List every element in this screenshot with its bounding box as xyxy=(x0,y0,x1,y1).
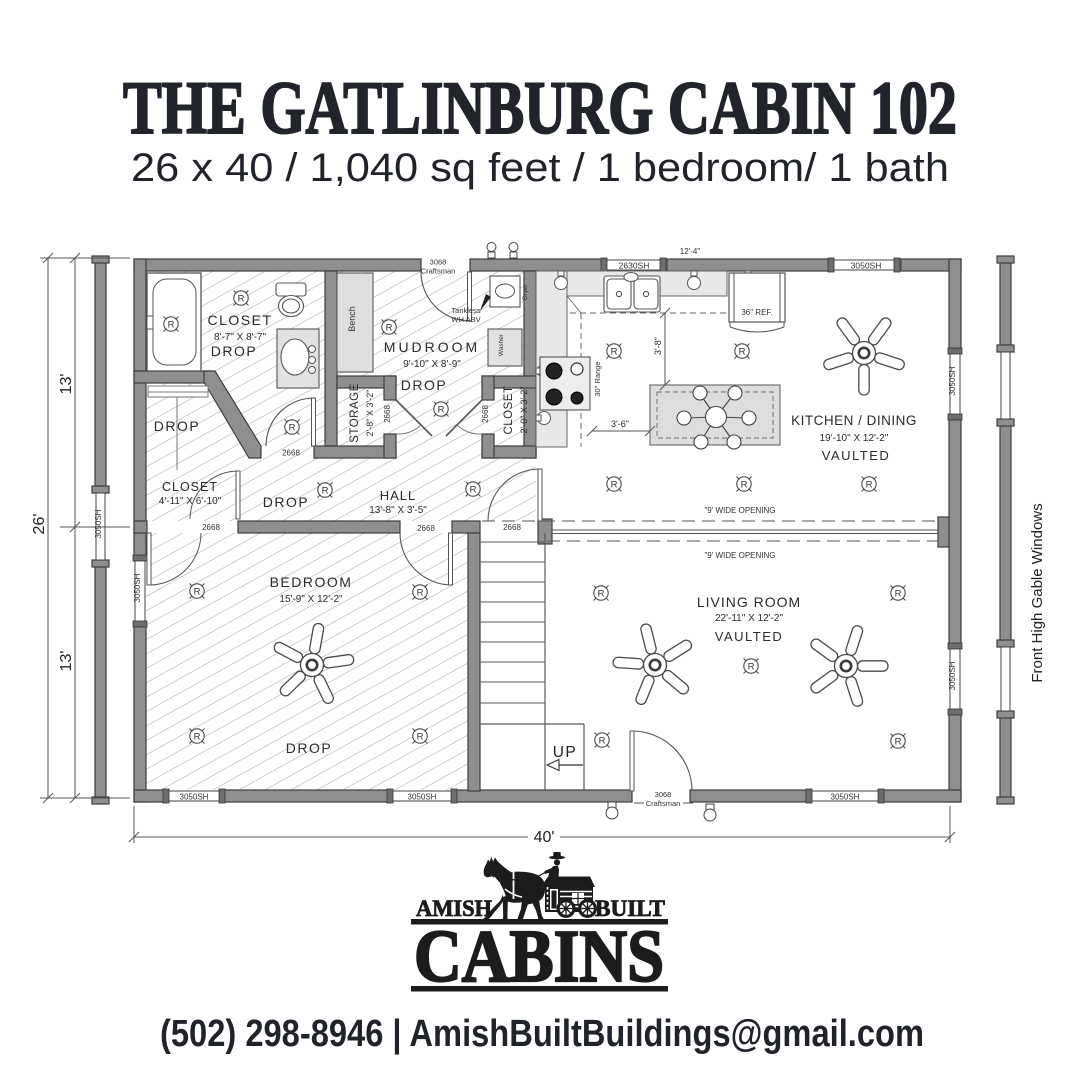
svg-text:KITCHEN / DINING: KITCHEN / DINING xyxy=(791,413,917,428)
svg-text:2668: 2668 xyxy=(282,449,300,458)
svg-text:DROP: DROP xyxy=(401,377,447,393)
svg-text:CLOSET: CLOSET xyxy=(503,385,515,434)
svg-text:15'-9" X 12'-2": 15'-9" X 12'-2" xyxy=(279,594,343,605)
svg-text:BEDROOM: BEDROOM xyxy=(270,574,353,590)
svg-text:3050SH: 3050SH xyxy=(948,661,957,690)
svg-text:HALL: HALL xyxy=(380,488,417,503)
svg-text:40': 40' xyxy=(534,829,555,846)
svg-text:"9' WIDE OPENING: "9' WIDE OPENING xyxy=(704,551,775,560)
svg-text:26 x 40 / 1,040 sq feet / 1 be: 26 x 40 / 1,040 sq feet / 1 bedroom/ 1 b… xyxy=(131,146,949,190)
svg-text:STORAGE: STORAGE xyxy=(349,383,361,443)
svg-text:8'-7" X 8'-7": 8'-7" X 8'-7" xyxy=(214,332,267,343)
svg-text:26': 26' xyxy=(31,514,48,535)
svg-text:2668: 2668 xyxy=(481,405,490,423)
svg-text:"9' WIDE OPENING: "9' WIDE OPENING xyxy=(704,506,775,515)
svg-text:Tankless: Tankless xyxy=(451,306,480,315)
svg-text:DROP: DROP xyxy=(154,418,200,434)
svg-text:Washer: Washer xyxy=(498,333,505,356)
svg-text:CABINS: CABINS xyxy=(414,916,664,998)
svg-text:DROP: DROP xyxy=(211,343,257,359)
svg-text:3'-6": 3'-6" xyxy=(611,419,629,429)
svg-text:9'-10" X 8'-9": 9'-10" X 8'-9" xyxy=(403,359,461,370)
svg-text:DROP: DROP xyxy=(286,740,332,756)
svg-text:2668: 2668 xyxy=(202,523,220,532)
svg-text:12'-4": 12'-4" xyxy=(680,247,701,256)
svg-text:13'-8" X 3'-5": 13'-8" X 3'-5" xyxy=(369,505,427,516)
svg-text:(502) 298-8946 | AmishBuiltBui: (502) 298-8946 | AmishBuiltBuildings@gma… xyxy=(160,1013,924,1055)
svg-text:3050SH: 3050SH xyxy=(133,573,142,602)
svg-text:3050SH: 3050SH xyxy=(180,793,209,802)
svg-text:2'-0" X 3'-2": 2'-0" X 3'-2" xyxy=(519,387,529,434)
svg-text:3050SH: 3050SH xyxy=(948,366,957,395)
svg-text:19'-10" X 12'-2": 19'-10" X 12'-2" xyxy=(820,433,889,444)
svg-text:Bench: Bench xyxy=(347,306,357,332)
svg-text:3068: 3068 xyxy=(655,790,672,799)
svg-text:2668: 2668 xyxy=(383,405,392,423)
svg-text:CLOSET: CLOSET xyxy=(162,480,218,494)
svg-text:UP: UP xyxy=(553,744,578,761)
svg-text:2668: 2668 xyxy=(503,523,521,532)
svg-text:DROP: DROP xyxy=(263,494,309,510)
svg-text:WH ABV: WH ABV xyxy=(451,315,480,324)
svg-text:2630SH: 2630SH xyxy=(619,261,650,271)
svg-text:Craftsman: Craftsman xyxy=(646,799,681,808)
svg-text:2'-8" X 3'-2": 2'-8" X 3'-2" xyxy=(365,390,375,437)
svg-text:3050SH: 3050SH xyxy=(831,793,860,802)
svg-text:3068: 3068 xyxy=(430,258,447,267)
svg-text:22'-11" X 12'-2": 22'-11" X 12'-2" xyxy=(715,613,783,624)
svg-text:3050SH: 3050SH xyxy=(408,793,437,802)
svg-text:3050SH: 3050SH xyxy=(94,509,103,538)
svg-text:THE GATLINBURG CABIN 102: THE GATLINBURG CABIN 102 xyxy=(123,67,957,150)
svg-text:MUDROOM: MUDROOM xyxy=(384,339,480,355)
svg-text:3050SH: 3050SH xyxy=(851,261,882,271)
svg-text:CLOSET: CLOSET xyxy=(207,312,272,328)
svg-text:13': 13' xyxy=(58,651,75,672)
svg-text:Craftsman: Craftsman xyxy=(421,267,456,276)
svg-text:4'-11" X 6'-10": 4'-11" X 6'-10" xyxy=(159,496,222,507)
svg-text:VAULTED: VAULTED xyxy=(822,448,891,463)
svg-text:LIVING ROOM: LIVING ROOM xyxy=(697,594,801,610)
svg-text:2668: 2668 xyxy=(417,524,435,533)
svg-text:Front High Gable Windows: Front High Gable Windows xyxy=(1029,503,1046,682)
svg-text:30" Range: 30" Range xyxy=(593,361,602,396)
svg-text:3'-8": 3'-8" xyxy=(653,337,663,355)
svg-text:VAULTED: VAULTED xyxy=(715,629,784,644)
svg-text:36" REF.: 36" REF. xyxy=(741,308,772,317)
svg-text:Dryer: Dryer xyxy=(522,283,529,300)
svg-text:13': 13' xyxy=(58,374,75,395)
